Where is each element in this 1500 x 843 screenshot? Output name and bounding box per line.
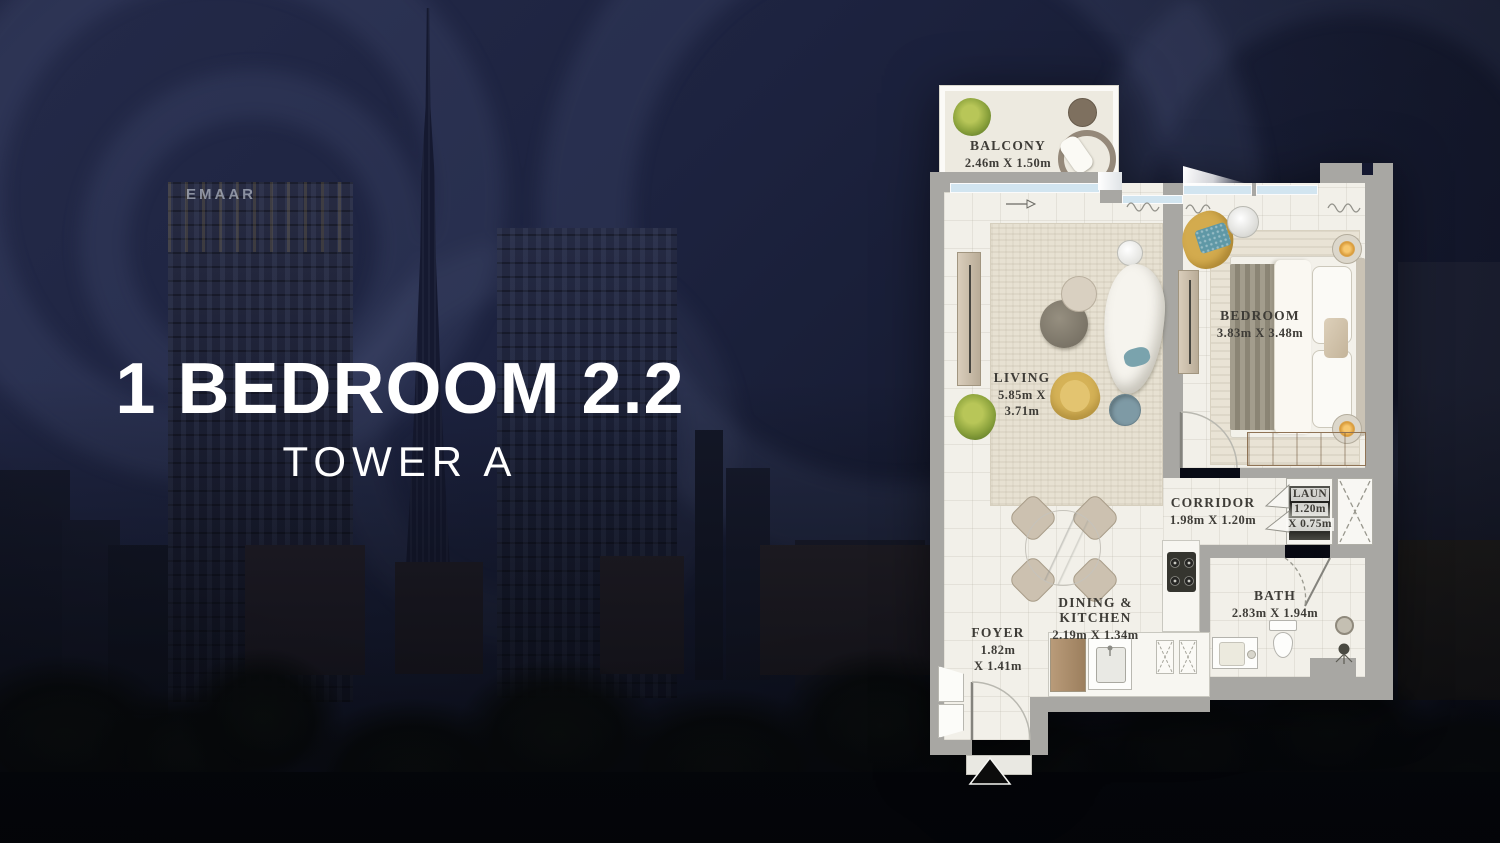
bedroom-window-2 bbox=[1256, 185, 1318, 195]
coffee-table-small bbox=[1061, 276, 1097, 312]
room-name: DINING & KITCHEN bbox=[1028, 596, 1163, 626]
living-console bbox=[957, 252, 981, 386]
nightstand-top bbox=[1332, 234, 1362, 264]
lit-building bbox=[600, 556, 684, 674]
wall-top-right-block bbox=[1320, 163, 1393, 183]
bedroom-window-1 bbox=[1183, 185, 1252, 195]
cabinet-panel bbox=[1156, 640, 1174, 674]
ball-chair bbox=[1117, 240, 1143, 266]
wall-foyer-step bbox=[1030, 697, 1048, 755]
room-dims: 2.83m X 1.94m bbox=[1220, 606, 1330, 620]
plan-title: 1 BEDROOM 2.2 bbox=[40, 352, 760, 427]
wall-bath-south bbox=[1210, 677, 1393, 700]
room-dims: 3.83m X 3.48m bbox=[1205, 326, 1315, 340]
living-label: LIVING 5.85m X 3.71m bbox=[976, 371, 1068, 419]
service-shaft bbox=[1337, 478, 1373, 545]
bath-vanity bbox=[1212, 637, 1258, 669]
room-dims: 1.98m X 1.20m bbox=[1165, 513, 1261, 527]
room-dims: X 1.41m bbox=[962, 659, 1034, 673]
room-dims: 2.19m X 1.34m bbox=[1028, 628, 1163, 642]
bedroom-round-table bbox=[1227, 206, 1259, 238]
room-dims-text: 1.20m bbox=[1292, 503, 1328, 516]
vanity-bottle bbox=[1247, 650, 1256, 659]
laundry-label: LAUN 1.20m X 0.75m bbox=[1282, 488, 1338, 531]
room-dims: 5.85m X bbox=[976, 388, 1068, 402]
toilet-cistern bbox=[1269, 620, 1297, 631]
room-name: LIVING bbox=[976, 371, 1068, 386]
kitchen-sink-unit bbox=[1088, 638, 1132, 690]
bath-mirror bbox=[1335, 616, 1354, 635]
dining-kitchen-label: DINING & KITCHEN 2.19m X 1.34m bbox=[1028, 596, 1163, 642]
tower-subtitle: TOWER A bbox=[40, 438, 760, 486]
wall-bath-north-right bbox=[1330, 545, 1393, 558]
lit-building bbox=[395, 562, 483, 674]
bed-blanket bbox=[1230, 264, 1276, 430]
console-handle bbox=[969, 265, 971, 373]
balcony-sliding-window bbox=[950, 183, 1100, 193]
room-dims: 1.82m bbox=[962, 643, 1034, 657]
room-name: BEDROOM bbox=[1205, 309, 1315, 324]
room-name: BALCONY bbox=[930, 139, 1086, 154]
floor-plan: BALCONY 2.46m X 1.50m LIVING 5.85m X 3.7… bbox=[920, 60, 1420, 800]
wall-foyer-south bbox=[930, 740, 972, 755]
room-name: CORRIDOR bbox=[1165, 496, 1261, 511]
ottoman bbox=[1109, 394, 1141, 426]
wall-kitchen-south bbox=[1048, 697, 1210, 712]
title-block: 1 BEDROOM 2.2 TOWER A bbox=[40, 352, 760, 486]
kitchen-wood-cabinet bbox=[1050, 638, 1086, 692]
living-corner-window bbox=[1122, 195, 1183, 204]
bedroom-console bbox=[1178, 270, 1199, 374]
emaar-logo: EMAAR bbox=[186, 186, 256, 203]
sink-basin bbox=[1096, 647, 1126, 683]
balcony-side-table bbox=[1068, 98, 1097, 127]
wall-bedroom-south-right bbox=[1240, 468, 1365, 478]
room-dims: 2.46m X 1.50m bbox=[930, 156, 1086, 170]
room-name: BATH bbox=[1220, 589, 1330, 604]
console-handle bbox=[1189, 280, 1191, 364]
bed-accent-pillow bbox=[1324, 318, 1348, 358]
vanity-basin bbox=[1219, 642, 1245, 666]
wall-bedroom-south-left bbox=[1163, 468, 1180, 478]
room-name-text: LAUN bbox=[1291, 488, 1329, 501]
wall-bath-north-left bbox=[1210, 545, 1285, 558]
page: EMAAR 1 BEDROOM 2.2 TOWER A bbox=[0, 0, 1500, 843]
dining-table bbox=[1025, 510, 1101, 586]
corridor-label: CORRIDOR 1.98m X 1.20m bbox=[1165, 496, 1261, 527]
wall-right bbox=[1365, 183, 1393, 700]
lamp-glow bbox=[1339, 241, 1355, 257]
room-name: FOYER bbox=[962, 626, 1034, 641]
wall-notch bbox=[1362, 163, 1373, 175]
room-dims: 3.71m bbox=[976, 404, 1068, 418]
room-dims: 1.20m bbox=[1282, 503, 1338, 516]
foyer-label: FOYER 1.82m X 1.41m bbox=[962, 626, 1034, 674]
bath-label: BATH 2.83m X 1.94m bbox=[1220, 589, 1330, 620]
pocket-door bbox=[1098, 172, 1122, 190]
headboard bbox=[1356, 258, 1365, 436]
balcony-label: BALCONY 2.46m X 1.50m bbox=[930, 139, 1086, 170]
bedroom-dresser bbox=[1247, 432, 1366, 466]
bedroom-label: BEDROOM 3.83m X 3.48m bbox=[1205, 309, 1315, 340]
room-dims: X 0.75m bbox=[1282, 518, 1338, 531]
dining-set bbox=[1025, 510, 1101, 586]
entry-threshold bbox=[966, 755, 1032, 775]
wall-bath-column bbox=[1310, 658, 1356, 677]
bed-duvet bbox=[1274, 260, 1311, 434]
room-dims-text: X 0.75m bbox=[1286, 518, 1334, 531]
cabinet-panel bbox=[1179, 640, 1197, 674]
stove bbox=[1167, 552, 1196, 592]
room-name: LAUN bbox=[1282, 488, 1338, 501]
